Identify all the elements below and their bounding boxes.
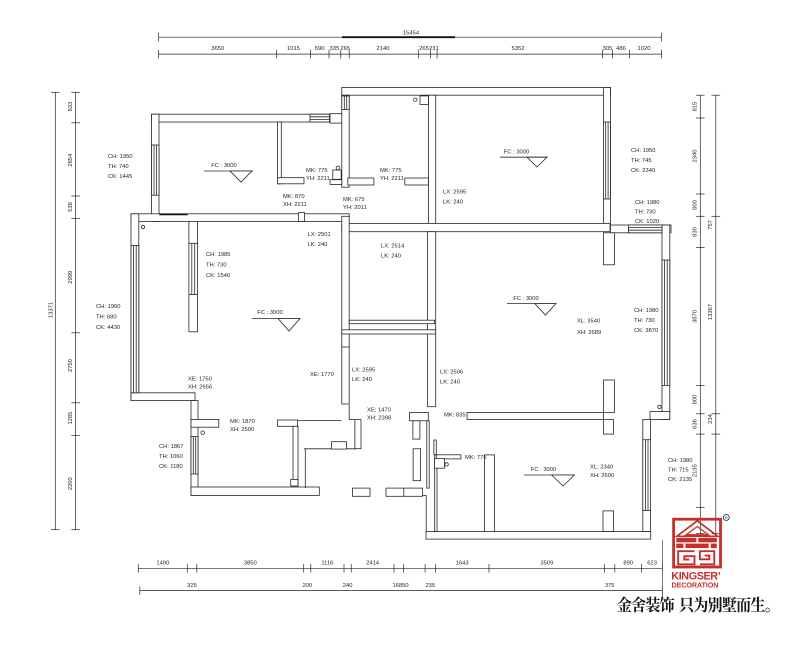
svg-text:YH: 2211: YH: 2211	[306, 176, 330, 182]
svg-text:TH: 680: TH: 680	[96, 315, 117, 321]
svg-text:305: 305	[603, 46, 613, 52]
svg-text:XE: 1470: XE: 1470	[367, 408, 391, 414]
svg-text:MK: 675: MK: 675	[343, 197, 365, 203]
svg-text:XH: 2600: XH: 2600	[590, 473, 614, 479]
svg-text:3650: 3650	[211, 46, 224, 52]
svg-text:235: 235	[425, 583, 435, 589]
svg-text:CK: 2135: CK: 2135	[668, 477, 692, 483]
svg-text:LX: 2595: LX: 2595	[443, 190, 466, 196]
svg-text:800: 800	[693, 395, 699, 405]
svg-text:234: 234	[708, 413, 714, 423]
svg-text:590: 590	[315, 46, 325, 52]
svg-text:538: 538	[68, 202, 74, 212]
svg-text:833: 833	[68, 102, 74, 112]
svg-text:XH: 2398: XH: 2398	[367, 416, 391, 422]
svg-text:FC : 3000: FC : 3000	[257, 310, 282, 316]
svg-text:XH: 2211: XH: 2211	[283, 202, 307, 208]
svg-text:XH: 2500: XH: 2500	[230, 427, 254, 433]
svg-text:1116: 1116	[321, 561, 333, 567]
svg-text:890: 890	[623, 561, 633, 567]
svg-text:CH: 1985: CH: 1985	[206, 252, 231, 258]
svg-text:LK: 240: LK: 240	[381, 254, 401, 260]
svg-text:15454: 15454	[403, 31, 420, 37]
svg-text:1490: 1490	[156, 561, 169, 567]
svg-text:231: 231	[429, 46, 439, 52]
svg-text:1285: 1285	[68, 412, 74, 425]
svg-text:CH: 1980: CH: 1980	[635, 200, 660, 206]
svg-text:2340: 2340	[693, 150, 699, 163]
svg-text:TH: 730: TH: 730	[635, 210, 656, 216]
svg-text:TH: 730: TH: 730	[206, 263, 227, 269]
svg-text:TH: 745: TH: 745	[631, 158, 652, 164]
svg-text:YH: 2211: YH: 2211	[380, 176, 404, 182]
svg-text:MK: 775: MK: 775	[380, 168, 402, 174]
svg-text:TH: 730: TH: 730	[634, 318, 655, 324]
svg-text:2414: 2414	[366, 561, 380, 567]
svg-text:LX: 2506: LX: 2506	[440, 370, 463, 376]
svg-text:CK: 1445: CK: 1445	[108, 174, 132, 180]
svg-text:LK: 240: LK: 240	[440, 380, 460, 386]
svg-text:XE: 1750: XE: 1750	[188, 377, 212, 383]
svg-text:1015: 1015	[287, 46, 300, 52]
svg-text:2854: 2854	[68, 153, 74, 167]
svg-text:3509: 3509	[540, 561, 553, 567]
svg-text:636: 636	[693, 419, 699, 429]
svg-text:3850: 3850	[244, 561, 257, 567]
svg-text:LK: 240: LK: 240	[443, 200, 463, 206]
svg-text:2135: 2135	[693, 464, 699, 477]
svg-text:375: 375	[605, 583, 615, 589]
svg-text:CH: 1867: CH: 1867	[159, 444, 184, 450]
svg-text:FC : 3000: FC : 3000	[531, 467, 556, 473]
svg-text:2140: 2140	[377, 46, 390, 52]
svg-text:CH: 1950: CH: 1950	[108, 154, 133, 160]
svg-text:CK: 1020: CK: 1020	[635, 219, 659, 225]
svg-text:MK: 775: MK: 775	[465, 455, 487, 461]
svg-text:LX: 2595: LX: 2595	[352, 368, 375, 374]
svg-text:LK: 240: LK: 240	[352, 377, 372, 383]
svg-text:FC : 3000: FC : 3000	[504, 150, 529, 156]
svg-text:CH: 1980: CH: 1980	[668, 458, 693, 464]
svg-text:2750: 2750	[68, 359, 74, 372]
svg-text:MK: 1870: MK: 1870	[230, 419, 255, 425]
svg-text:XL: 2340: XL: 2340	[590, 465, 613, 471]
svg-text:800: 800	[693, 200, 699, 210]
svg-text:FC : 3000: FC : 3000	[211, 163, 236, 169]
svg-text:815: 815	[693, 102, 699, 112]
svg-text:MK: 835: MK: 835	[444, 413, 466, 419]
svg-text:XH: 2656: XH: 2656	[188, 385, 212, 391]
svg-text:CK: 1540: CK: 1540	[206, 273, 230, 279]
svg-text:YH: 2011: YH: 2011	[343, 205, 367, 211]
svg-text:MK: 870: MK: 870	[283, 194, 305, 200]
svg-text:830: 830	[693, 227, 699, 237]
svg-text:MK: 775: MK: 775	[306, 168, 328, 174]
svg-text:XH: 2689: XH: 2689	[577, 330, 601, 336]
svg-text:TH: 1060: TH: 1060	[159, 454, 183, 460]
svg-text:265: 265	[419, 46, 429, 52]
svg-text:CH: 1960: CH: 1960	[96, 304, 121, 310]
svg-text:LX: 2501: LX: 2501	[308, 232, 331, 238]
svg-text:13371: 13371	[48, 302, 54, 318]
svg-text:CH: 1950: CH: 1950	[631, 148, 656, 154]
svg-text:CH: 1980: CH: 1980	[634, 308, 659, 314]
svg-text:486: 486	[616, 46, 626, 52]
svg-text:16850: 16850	[392, 583, 408, 589]
svg-text:3870: 3870	[693, 310, 699, 323]
svg-text:CK: 3870: CK: 3870	[634, 328, 658, 334]
svg-text:757: 757	[708, 220, 714, 230]
svg-text:2999: 2999	[68, 271, 74, 284]
svg-text:265: 265	[340, 46, 350, 52]
svg-text:335: 335	[330, 46, 340, 52]
svg-text:240: 240	[343, 583, 353, 589]
svg-text:200: 200	[302, 583, 312, 589]
svg-text:FC : 3000: FC : 3000	[513, 296, 538, 302]
svg-text:13367: 13367	[708, 304, 714, 320]
svg-text:CK: 4430: CK: 4430	[96, 325, 120, 331]
svg-text:TH: 740: TH: 740	[108, 164, 129, 170]
svg-text:5352: 5352	[512, 46, 525, 52]
svg-text:1643: 1643	[456, 561, 469, 567]
svg-text:CK: 2340: CK: 2340	[631, 168, 655, 174]
svg-text:CK: 1180: CK: 1180	[159, 464, 183, 470]
svg-text:LX: 2514: LX: 2514	[381, 244, 405, 250]
svg-text:DECORATION: DECORATION	[672, 581, 719, 590]
svg-text:623: 623	[647, 561, 657, 567]
svg-text:XE: 1770: XE: 1770	[310, 372, 334, 378]
svg-text:325: 325	[187, 583, 197, 589]
svg-text:LK: 240: LK: 240	[308, 242, 328, 248]
svg-text:TH: 715: TH: 715	[668, 468, 689, 474]
svg-text:2200: 2200	[68, 477, 74, 490]
svg-text:1020: 1020	[638, 46, 651, 52]
svg-text:XL: 3540: XL: 3540	[577, 319, 600, 325]
